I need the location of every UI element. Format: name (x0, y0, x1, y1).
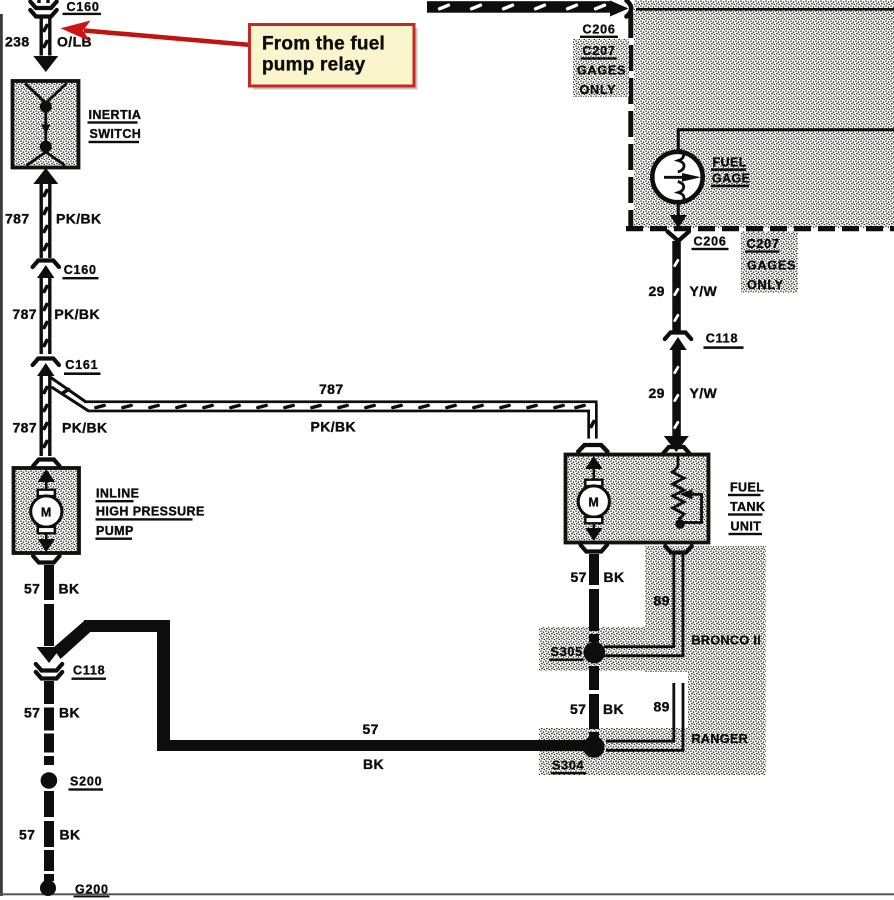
svg-text:C207: C207 (583, 44, 616, 58)
svg-text:PK/BK: PK/BK (311, 419, 357, 435)
svg-text:787: 787 (13, 420, 38, 436)
svg-text:C206: C206 (694, 235, 727, 249)
svg-text:238: 238 (5, 34, 30, 50)
svg-text:ONLY: ONLY (580, 83, 617, 97)
svg-text:SWITCH: SWITCH (90, 127, 142, 141)
svg-text:57: 57 (363, 721, 379, 737)
svg-text:C161: C161 (65, 358, 98, 372)
svg-text:29: 29 (649, 385, 665, 401)
svg-text:787: 787 (12, 306, 37, 322)
svg-text:O/LB: O/LB (57, 34, 92, 50)
svg-text:ONLY: ONLY (747, 278, 784, 292)
svg-text:INLINE: INLINE (96, 487, 139, 501)
svg-text:PK/BK: PK/BK (54, 306, 100, 322)
svg-text:BK: BK (59, 705, 80, 721)
svg-text:BK: BK (603, 701, 624, 717)
svg-text:S304: S304 (552, 759, 584, 773)
svg-text:G200: G200 (75, 883, 109, 897)
svg-text:57: 57 (24, 581, 40, 597)
svg-text:PK/BK: PK/BK (62, 420, 108, 436)
svg-text:787: 787 (5, 211, 30, 227)
svg-text:57: 57 (571, 569, 587, 585)
svg-text:FUEL: FUEL (713, 155, 747, 169)
svg-text:RANGER: RANGER (692, 732, 749, 746)
svg-text:C160: C160 (67, 0, 100, 14)
svg-text:GAGES: GAGES (577, 64, 626, 78)
svg-text:57: 57 (19, 827, 35, 843)
svg-text:GAGES: GAGES (747, 259, 796, 273)
svg-text:S200: S200 (70, 775, 102, 789)
svg-text:BK: BK (60, 827, 81, 843)
svg-text:pump relay: pump relay (262, 55, 366, 76)
svg-text:TANK: TANK (730, 500, 765, 514)
svg-text:787: 787 (319, 381, 344, 397)
svg-text:Y/W: Y/W (690, 385, 718, 401)
svg-text:HIGH PRESSURE: HIGH PRESSURE (96, 505, 205, 519)
svg-text:57: 57 (24, 705, 40, 721)
svg-text:M: M (588, 495, 599, 509)
svg-text:FUEL: FUEL (730, 481, 764, 495)
svg-text:BK: BK (604, 569, 625, 585)
svg-text:BK: BK (59, 581, 80, 597)
svg-text:PK/BK: PK/BK (56, 211, 102, 227)
svg-text:57: 57 (570, 701, 586, 717)
svg-text:C160: C160 (64, 263, 97, 277)
svg-text:UNIT: UNIT (731, 520, 762, 534)
svg-text:29: 29 (649, 283, 665, 299)
svg-text:C118: C118 (706, 332, 738, 346)
svg-text:BK: BK (363, 756, 384, 772)
svg-text:89: 89 (654, 699, 670, 715)
svg-text:M: M (41, 505, 52, 519)
svg-text:PUMP: PUMP (96, 524, 134, 538)
svg-text:C207: C207 (747, 237, 780, 251)
svg-text:S305: S305 (551, 645, 583, 659)
svg-text:Y/W: Y/W (690, 283, 718, 299)
svg-text:From the fuel: From the fuel (262, 34, 385, 55)
svg-text:C206: C206 (583, 22, 616, 36)
svg-text:GAGE: GAGE (712, 172, 750, 186)
svg-text:C118: C118 (73, 664, 105, 678)
svg-text:89: 89 (654, 593, 670, 609)
svg-text:INERTIA: INERTIA (89, 108, 142, 122)
svg-text:BRONCO II: BRONCO II (692, 634, 762, 648)
